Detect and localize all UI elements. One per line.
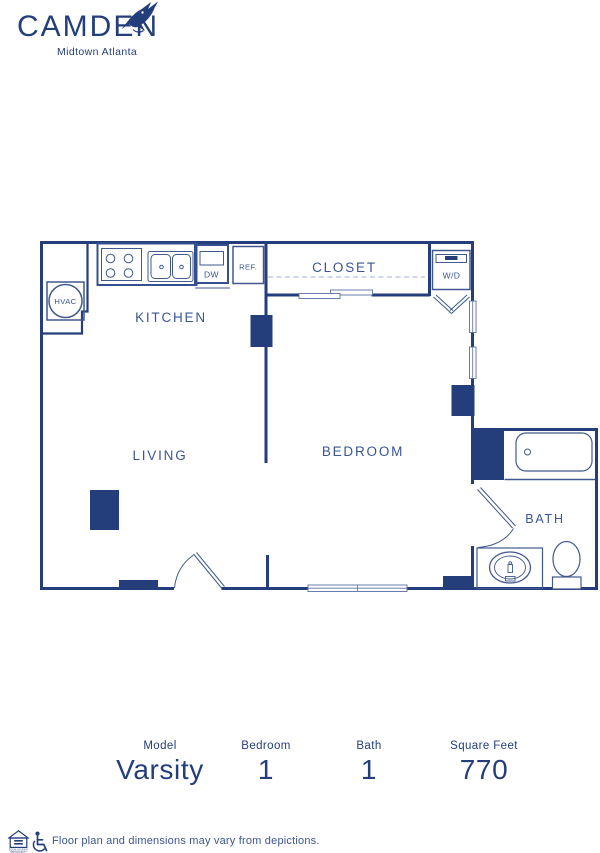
summary-bedroom-label: Bedroom: [211, 740, 321, 752]
equal-housing-icon: EQUAL HOUSING OPPORTUNITY: [8, 830, 29, 853]
room-label-closet: CLOSET: [312, 260, 377, 275]
dishwasher-label: DW: [204, 270, 219, 280]
summary-item-model: Model Varsity: [105, 740, 215, 786]
washer-dryer-unit: W/D: [433, 251, 471, 314]
summary-sqft-label: Square Feet: [429, 740, 539, 752]
refrigerator-icon: REF.: [233, 247, 264, 284]
room-label-bath: BATH: [525, 512, 565, 526]
plan-summary: Model Varsity Bedroom 1 Bath 1 Square Fe…: [0, 740, 600, 800]
summary-model-label: Model: [105, 740, 215, 752]
summary-bath-value: 1: [314, 754, 424, 786]
floorplan-page: CAMDEN Midtown Atlanta: [0, 0, 600, 853]
floor-plan: HVAC DW: [0, 0, 600, 853]
bathtub-icon: [516, 433, 592, 471]
kitchen-sink-icon: [148, 252, 193, 282]
summary-item-square-feet: Square Feet 770: [429, 740, 539, 786]
toilet-icon: [553, 542, 582, 590]
hvac-label: HVAC: [54, 297, 76, 306]
entry-door-icon: [175, 553, 225, 589]
hvac-unit: HVAC: [47, 282, 84, 320]
footer: EQUAL HOUSING OPPORTUNITY Floor plan and…: [0, 828, 600, 853]
refrigerator-label: REF.: [239, 263, 257, 272]
room-label-bedroom: BEDROOM: [322, 444, 404, 459]
bath-door-icon: [478, 488, 516, 548]
summary-sqft-value: 770: [429, 754, 539, 786]
vanity-sink-icon: [477, 548, 543, 589]
room-label-living: LIVING: [132, 448, 187, 463]
summary-bath-label: Bath: [314, 740, 424, 752]
summary-item-bath: Bath 1: [314, 740, 424, 786]
summary-item-bedroom: Bedroom 1: [211, 740, 321, 786]
bifold-door-icon: [434, 295, 470, 314]
summary-model-value: Varsity: [105, 754, 215, 786]
room-label-kitchen: KITCHEN: [135, 310, 207, 325]
summary-bedroom-value: 1: [211, 754, 321, 786]
dishwasher-icon: DW: [195, 245, 230, 288]
equal-housing-caption-1: EQUAL HOUSING: [9, 848, 28, 851]
kitchen-fixtures: DW REF.: [98, 244, 264, 289]
accessibility-icon: [30, 831, 48, 852]
stove-icon: [102, 249, 142, 281]
disclaimer-text: Floor plan and dimensions may vary from …: [52, 835, 320, 847]
washer-dryer-label: W/D: [443, 271, 461, 281]
